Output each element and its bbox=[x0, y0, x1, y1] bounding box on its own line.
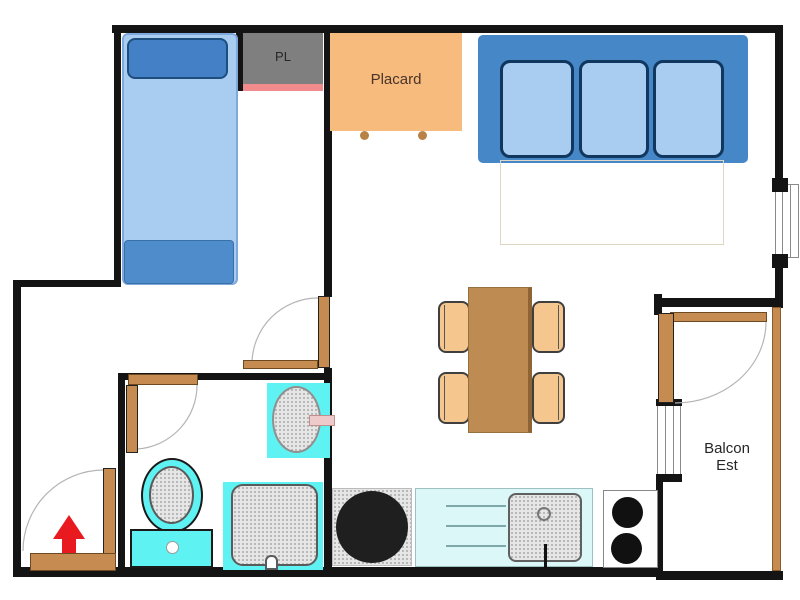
window-east-frame bbox=[775, 184, 799, 258]
window-east-cap-top bbox=[772, 178, 788, 192]
shower-floor bbox=[231, 484, 318, 566]
wall-top bbox=[112, 25, 783, 33]
placard-handle-left bbox=[360, 131, 369, 140]
toilet-lid bbox=[149, 466, 194, 524]
round-appliance bbox=[336, 491, 408, 563]
placard-label: Placard bbox=[330, 71, 462, 88]
door-bathroom-open bbox=[128, 374, 198, 385]
window-east-mullion-2 bbox=[790, 185, 791, 257]
window-balcony-cap-bottom bbox=[656, 474, 682, 482]
door-swing-arc-entrance bbox=[23, 470, 104, 551]
balcony-label-line2: Est bbox=[690, 457, 764, 474]
wall-bedroom-left bbox=[114, 25, 121, 287]
door-swing-arc-bathroom bbox=[137, 385, 197, 449]
door-entrance-threshold bbox=[30, 553, 116, 571]
balcony-railing bbox=[772, 307, 781, 571]
balcony-label: Balcon Est bbox=[690, 440, 764, 474]
sink-drain bbox=[537, 507, 551, 521]
closet-pl-label: PL bbox=[243, 49, 323, 64]
chair-bottom-right bbox=[532, 372, 565, 424]
door-balcony-leaf bbox=[658, 313, 674, 403]
wall-bathroom-left bbox=[118, 373, 125, 577]
wall-balcony-left-stub bbox=[654, 294, 662, 315]
floor-plan: PL Placard Balcon Est bbox=[0, 0, 800, 600]
window-balcony-frame bbox=[657, 405, 681, 477]
sink-faucet bbox=[544, 544, 547, 568]
sofa-cushion-3 bbox=[653, 60, 724, 158]
bathroom-sink-faucet bbox=[309, 415, 335, 426]
toilet-flush-button bbox=[166, 541, 179, 554]
chair-backrest-line-tl bbox=[444, 305, 445, 349]
door-swing-arc-balcony bbox=[675, 322, 766, 403]
drainer-line-1 bbox=[446, 505, 506, 507]
wall-right-upper bbox=[775, 25, 783, 180]
bed-footer bbox=[124, 240, 234, 284]
window-balcony-mullion-1 bbox=[665, 406, 666, 476]
chair-top-right bbox=[532, 301, 565, 353]
window-east-cap-bottom bbox=[772, 254, 788, 268]
sofa-cushion-1 bbox=[500, 60, 574, 158]
bed-pillow bbox=[127, 38, 228, 79]
sofa-foldout-outline bbox=[500, 160, 724, 245]
burner-1 bbox=[612, 497, 643, 528]
placard-handle-right bbox=[418, 131, 427, 140]
chair-backrest-line-bl bbox=[444, 376, 445, 420]
drainer-line-3 bbox=[446, 545, 506, 547]
window-east-mullion-1 bbox=[782, 185, 783, 257]
wall-living-balcony bbox=[654, 298, 783, 307]
shower-drain-notch bbox=[265, 555, 278, 570]
door-bathroom-leaf bbox=[126, 385, 138, 453]
balcony-label-line1: Balcon bbox=[690, 440, 764, 457]
door-balcony-open bbox=[670, 312, 767, 322]
closet-pl-front-strip bbox=[243, 84, 323, 91]
door-hallway-leaf bbox=[318, 296, 330, 368]
dining-table bbox=[468, 287, 532, 433]
chair-backrest-line-br bbox=[558, 376, 559, 420]
door-entrance-leaf bbox=[103, 468, 116, 558]
window-balcony-mullion-2 bbox=[673, 406, 674, 476]
chair-top-left bbox=[438, 301, 470, 353]
wall-entry-top bbox=[13, 280, 118, 287]
chair-backrest-line-tr bbox=[558, 305, 559, 349]
sofa-cushion-2 bbox=[579, 60, 649, 158]
drainer-line-2 bbox=[446, 525, 506, 527]
door-hallway-open bbox=[243, 360, 318, 369]
chair-bottom-left bbox=[438, 372, 470, 424]
wall-left bbox=[13, 280, 21, 577]
door-swing-arc-hallway bbox=[252, 298, 318, 364]
wall-bottom-balcony bbox=[656, 571, 783, 580]
burner-2 bbox=[611, 533, 642, 564]
